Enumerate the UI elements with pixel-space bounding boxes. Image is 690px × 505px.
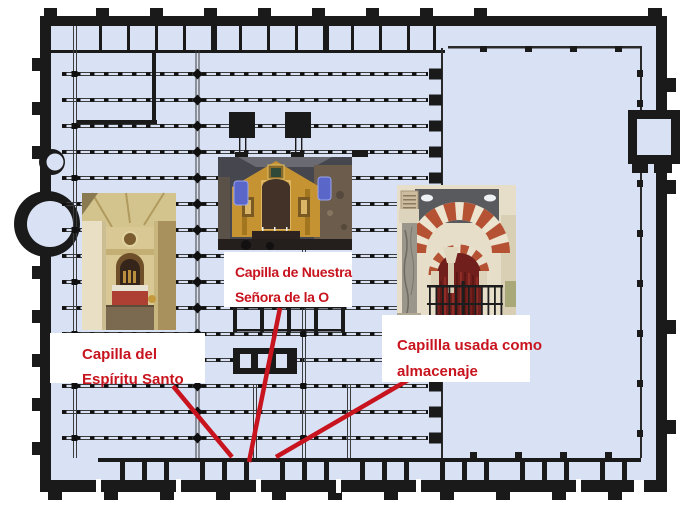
bell-tower: [628, 110, 680, 173]
chapel-photo-espiritu-santo: [82, 193, 176, 330]
label-line: Capilla de Nuestra: [235, 260, 352, 285]
label-capilla-de-nuestra-senora-de-la-o: Capilla de Nuestra Señora de la O: [224, 252, 352, 307]
label-line: Espíritu Santo: [82, 367, 205, 392]
chapel-photo-almacenaje: [397, 185, 516, 322]
label-line: Señora de la O: [235, 285, 352, 310]
label-line: almacenaje: [397, 359, 530, 385]
label-capilla-usada-como-almacenaje: Capillla usada como almacenaje: [382, 315, 530, 382]
label-capilla-del-espiritu-santo: Capilla del Espíritu Santo: [50, 333, 205, 383]
label-line: Capilla del: [82, 342, 205, 367]
label-line: Capillla usada como: [397, 333, 530, 359]
chapel-photo-nuestra-senora-de-la-o: [218, 157, 352, 250]
annotated-floor-plan-image: Capilla del Espíritu Santo Capilla de Nu…: [0, 0, 690, 505]
